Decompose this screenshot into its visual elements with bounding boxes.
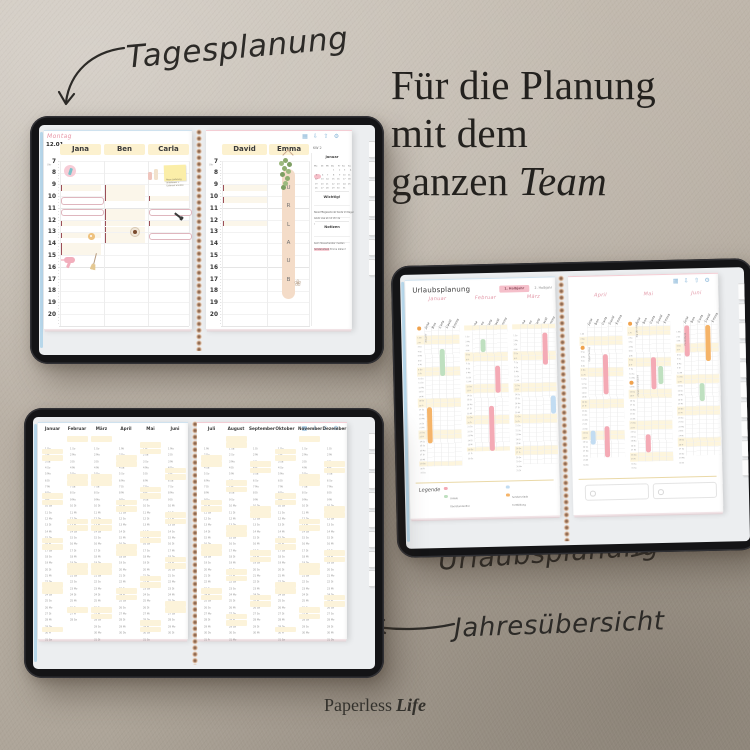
day-row: 7 Sa [299,474,320,480]
page-index-tab[interactable] [369,433,375,450]
overview-grid-icon[interactable]: ▦ [302,134,308,140]
export-icon[interactable]: ⇧ [323,134,329,140]
day-row: 11 Mi [67,500,88,506]
page-index-tab[interactable] [740,361,747,378]
day-row: 15 Di [250,525,271,531]
day-row: 14 Mi [42,519,63,525]
year-month: September1 Di2 Mi3 Do4 Fr5 Sa6 So7 Mo8 D… [249,423,272,639]
day-row: 14 Mo [250,519,271,525]
appointment-entry: Teamlunch → Anna [61,221,101,226]
day-row: 4 Mi [67,455,88,461]
page-index-tab[interactable] [369,492,375,509]
export-icon[interactable]: ⇧ [694,278,700,284]
appointment-entry: FÄRBEN (Anna) [61,197,104,204]
day-row: 5 Sa [324,461,345,467]
page-index-tab[interactable] [369,200,375,217]
sonderurlaub-bar [551,395,556,413]
day-row: 2 Fr [275,442,296,448]
holiday-note: Fortbildung [672,322,692,345]
headline-line2: mit dem [391,110,656,158]
date-text: 31 Sa [420,472,425,474]
vacation-left-page: Urlaubsplanung 1. Halbjahr 2. Halbjahr L… [405,276,560,518]
day-letter: Fr [338,165,340,167]
page-index-tab[interactable] [369,472,375,489]
day-row: 14 Di [116,519,137,525]
legend-label: Legende [419,487,441,493]
day-row: 2 Sa [140,442,161,448]
day-row: 16 So [226,531,247,537]
day-row: 23 Do [116,576,137,582]
day-row: 7 Do [140,474,161,480]
appointment-entry: STRÄHNEN (Umay) [149,233,192,240]
headline-line3-regular: ganzen [391,158,519,204]
page-index-tab[interactable] [739,303,746,320]
day-row: 6 Sa [165,468,186,474]
day-row: 23 Mi [250,576,271,582]
day-row: 26 So [201,595,222,601]
day-text: 30 Di [168,631,174,634]
day-number: 26 [315,187,318,189]
spiral-binding [192,129,206,351]
day-row: 29 Mo [165,614,186,620]
page-index-tab[interactable] [738,283,745,300]
legend-item-label: Überstundenfrei [449,493,482,513]
appointment-entry: FARBE (Lea S.) [61,209,104,216]
day-row: 15 Do [275,525,296,531]
appointment-entry: Beratung (Jan M.) [223,185,267,190]
day-row: 4 So [42,455,63,461]
comb-sticker [64,165,76,177]
day-row: 21 Di [116,563,137,569]
day-row: 10 Mo [226,493,247,499]
day-row: 24 Sa [42,582,63,588]
page-index-tab[interactable] [741,420,748,437]
day-row: 15 So [299,525,320,531]
day-row: 1 Di [250,436,271,442]
day-row: 6 Fr [91,468,112,474]
page-index-tab[interactable] [369,570,375,587]
day-row: 13 Do [226,512,247,518]
page-index-tab[interactable] [369,161,375,178]
ueberstunden-bar [481,339,486,353]
holiday-note: Neujahr [413,326,432,342]
note-text: Sonderurlaub Emma klären? [314,248,346,251]
page-index-tab[interactable] [369,531,375,548]
year-month: Januar1 Do2 Fr3 Sa4 So5 Mo6 Di7 Mi8 Do9 … [41,423,64,639]
day-row: 12 Mo [275,506,296,512]
day-row: 25 Sa [201,588,222,594]
day-row: 28 Sa [91,607,112,613]
day-row: 25 So [275,588,296,594]
day-row: 24 Sa [275,582,296,588]
day-row: 16 Do [201,531,222,537]
ueberstunden-bar [658,366,663,384]
date-cell: 30 Di [679,450,687,455]
page-index-tab[interactable] [369,511,375,528]
day-row: 21 Sa [299,563,320,569]
ueberstunden-bar [700,383,705,401]
day-letter: So [348,165,351,167]
day-row: 27 Fr [67,601,88,607]
day-row: 5 Sa [250,461,271,467]
appointment-entry: Ansatz + Längen abstimmen [223,226,269,231]
day-row: 5 Di [140,461,161,467]
day-row: 4 Mi [299,455,320,461]
day-row: 5 So [201,461,222,467]
day-row: 8 Mi [201,480,222,486]
day-row: 14 Fr [226,519,247,525]
day-row: 21 Mi [275,563,296,569]
day-row: 22 Mi [201,569,222,575]
day-row: 6 Mo [116,468,137,474]
date-text: 27 Fr [468,453,473,455]
day-row: 24 Do [324,582,345,588]
day-row: 11 So [42,500,63,506]
day-row: 17 Do [324,538,345,544]
vacation-planner-screen: Urlaubsplanung 1. Halbjahr 2. Halbjahr L… [400,267,750,549]
day-row: 10 Sa [275,493,296,499]
day-row: 23 Do [201,576,222,582]
page-index-tab[interactable] [369,259,375,276]
day-row: 16 Di [165,531,186,537]
day-row: 31 So [140,627,161,633]
day-row: 17 Do [250,538,271,544]
day-row: 15 So [67,525,88,531]
day-row: 10 Di [299,493,320,499]
day-row: 7 Sa [67,474,88,480]
vacation-month: MaiJanaBenCarlaDavidEmma1 Fr2 Sa3 So4 Mo… [626,291,674,472]
page-index-tab[interactable] [740,381,747,398]
year-month: Februar1 So2 Mo3 Di4 Mi5 Do6 Fr7 Sa8 So9… [66,423,89,639]
day-row: 8 So [299,480,320,486]
day-number: 5 [316,174,317,176]
day-row: 4 So [275,455,296,461]
page-index-tab[interactable] [369,239,375,256]
day-row: 29 Di [324,614,345,620]
day-row: 31 Sa [275,627,296,633]
day-row: 30 Sa [140,620,161,626]
day-row: 7 So [165,474,186,480]
day-row: 1 Mi [116,436,137,442]
day-row: 19 Do [67,550,88,556]
fortbildung-bar [427,407,432,443]
page-index-tab[interactable] [739,322,746,339]
day-row: 16 Mo [67,531,88,537]
headline-line3-italic: Team [519,158,607,204]
page-index-tab[interactable] [369,551,375,568]
day-row: 15 Sa [226,525,247,531]
day-row: 12 Sa [324,506,345,512]
year-month-name: November [298,426,321,431]
day-number: 3 [344,169,345,171]
day-row: 16 Sa [140,531,161,537]
urlaub-bar [646,434,651,452]
day-text: 30 Mo [302,631,309,634]
day-row: 13 Mi [140,512,161,518]
plant-sticker [272,155,298,191]
day-row: 30 Do [116,620,137,626]
download-icon[interactable]: ⇩ [683,278,689,284]
page-index-tab[interactable] [740,342,747,359]
day-row: 24 Di [67,582,88,588]
day-row: 31 Di [91,627,112,633]
appointment-entry: Herrenhaarschnitt (Nico T.) [105,196,145,201]
tab-first-half-year[interactable]: 1. Halbjahr [499,285,529,292]
day-number: 31 [343,187,346,189]
daily-sidebar: Januar MoDiMiDoFrSaSo1234567891011121314… [311,153,351,326]
vacation-month-grid: 1 Fr2 Sa3 So4 Mo5 Di6 Mi7 Do8 Fr9 Sa10 S… [627,321,673,461]
day-row: 13 So [324,512,345,518]
day-row: 1 So [299,436,320,442]
ueberstunden-bar [440,348,445,375]
day-row: 19 Do [91,550,112,556]
day-row: 17 Di [91,538,112,544]
year-month: April1 Mi2 Do3 Fr4 Sa5 So6 Mo7 Di8 Mi9 D… [115,423,138,639]
day-row: 12 Mi [226,506,247,512]
vacation-month-grid: 1 Mo2 Di3 Mi4 Do5 Fr6 Sa7 So8 Mo9 Di10 M… [675,320,721,456]
day-row: 4 Fr [250,455,271,461]
day-row: 17 Sa [275,538,296,544]
daily-right-page: DavidEmma Uhr 7891011121314151617181920 … [206,130,352,329]
vacation-month-name: April [578,292,622,299]
day-row: 22 Di [324,569,345,575]
day-row: 30 Mo [299,620,320,626]
day-number: 2 [339,169,340,171]
holiday-note-text: Tag der Arbeit [635,322,638,338]
day-number: 8 [333,174,334,176]
day-row: 12 So [201,506,222,512]
day-row: 26 Do [67,595,88,601]
day-row: 7 Di [116,474,137,480]
day-row: 19 Sa [324,550,345,556]
day-number: 25 [348,183,351,185]
day-row: 7 Mo [250,474,271,480]
headline: Für die Planung mit dem ganzen Team [391,62,656,206]
settings-icon[interactable]: ⚙ [334,134,340,140]
date-text: 30 Do [583,464,588,466]
day-row: 13 Di [42,512,63,518]
day-row: 9 Mo [299,487,320,493]
day-row: 8 Di [250,480,271,486]
planner-cover-edge [34,424,37,662]
day-text: 31 Mo [229,638,236,641]
day-row: 31 Fr [201,627,222,633]
note-text: beim Steuerberater melden [314,242,345,245]
vacation-month-grid: 1 Do2 Fr3 Sa4 So5 Mo6 Di7 Mi8 Do9 Fr10 S… [416,326,462,466]
day-row: 11 Mi [91,500,112,506]
day-row: 21 Sa [67,563,88,569]
daily-left-page: Montag 12.01 Uhr JanaBenCarla 7891011121… [44,130,192,329]
donut-sticker [88,233,95,240]
page-index-tab[interactable] [742,440,749,457]
day-row: 9 Mo [67,487,88,493]
fortbildung-bar [705,324,710,360]
day-row: 31 Do [324,627,345,633]
day-number: 11 [348,174,351,176]
day-row: 18 Fr [324,544,345,550]
vacation-month: AprilJanaBenCarlaDavidEmma1 Mi2 Do3 Fr4 … [578,292,626,473]
day-row: 2 Di [165,442,186,448]
day-row: 20 Do [226,557,247,563]
vacation-month-name: März [511,293,555,300]
day-row: 18 Mi [91,544,112,550]
fortbildung-legend-dot [506,493,510,497]
day-row: 21 Fr [226,563,247,569]
day-row: 17 Mo [226,538,247,544]
day-row: 30 Fr [275,620,296,626]
day-row: 6 Do [226,468,247,474]
day-row: 5 Fr [165,461,186,467]
day-row: 19 So [201,550,222,556]
year-month-name: Februar [66,426,89,431]
day-row: 11 Mi [299,500,320,506]
appointment-entry: Ansatz färben (Mia K.) [61,243,101,248]
date-text: 30 Sa [631,463,636,465]
day-row: 19 Mi [226,550,247,556]
holiday-note-text: Fortbildung [683,333,686,346]
appointment-entry: Mittagspause [105,221,145,226]
year-month: März1 So2 Mo3 Di4 Mi5 Do6 Fr7 Sa8 So9 Mo… [90,423,113,639]
day-row: 3 Sa [275,449,296,455]
day-number: 24 [343,183,346,185]
holiday-note-text: Neujahr [424,334,427,343]
date-cell: 28 Sa [468,446,476,451]
day-row: 10 Di [91,493,112,499]
note-text: ! [314,223,315,226]
day-row: 18 So [275,544,296,550]
page-index-tab[interactable] [369,180,375,197]
vacation-month-name: Januar [415,296,459,303]
day-letter: Mi [326,165,329,167]
day-row: 9 Fr [275,487,296,493]
day-row: 30 Do [201,620,222,626]
appointment-entry: Damenhaarschnitt (Maria) [61,185,101,190]
coffee-sticker [130,227,140,237]
day-number: 10 [343,174,346,176]
page-index-tab[interactable] [741,401,748,418]
day-row: 5 Mo [42,461,63,467]
date-cell: 31 So [631,456,639,461]
date-cell: 31 Sa [420,461,428,466]
page-index-tab[interactable] [369,219,375,236]
year-month: August1 Sa2 So3 Mo4 Di5 Mi6 Do7 Fr8 Sa9 … [225,423,248,639]
day-row: 6 Fr [67,468,88,474]
day-row: 20 So [324,557,345,563]
day-row: 14 Mo [324,519,345,525]
caption-jahresuebersicht: Jahresübersicht [454,606,666,643]
mini-calendar[interactable]: MoDiMiDoFrSaSo12345678910111213141516171… [314,161,350,188]
daily-planner-screen: Montag 12.01 Uhr JanaBenCarla 7891011121… [39,125,375,355]
day-number: 18 [348,178,351,180]
tab-second-half-year[interactable]: 2. Halbjahr [533,284,553,291]
day-row: 10 Fr [116,493,137,499]
day-row: 24 Di [299,582,320,588]
day-number: 7 [327,174,328,176]
page-index-tab[interactable] [742,459,749,476]
day-row: 1 So [67,436,88,442]
day-row: 15 Mi [116,525,137,531]
day-row: 18 Sa [116,544,137,550]
day-text: 31 Fr [204,638,210,641]
day-number: 29 [332,187,335,189]
day-text: 31 Do [327,638,334,641]
day-row: 27 Fr [91,601,112,607]
day-row: 9 Do [201,487,222,493]
day-number: 21 [326,183,329,185]
day-row: 19 Mo [275,550,296,556]
day-row: 13 Di [275,512,296,518]
day-row: 8 Do [275,480,296,486]
page-index-tab[interactable] [369,141,375,158]
planner-cover-edge [40,132,43,348]
ueberstunden-legend-dot [444,494,448,498]
day-row: 27 Di [275,601,296,607]
year-month: Juli1 Mi2 Do3 Fr4 Sa5 So6 Mo7 Di8 Mi9 Do… [200,423,223,639]
appointment-entry: Herrenhaarschnitt (Sven K.) [105,214,145,219]
day-row: 20 Di [42,557,63,563]
day-row: 30 Mi [324,620,345,626]
year-month-name: April [115,426,138,431]
day-row: 19 Sa [250,550,271,556]
legend-text: Fortbildung [512,503,526,506]
note-text: Neue Pflegeserie ab heute im Regal [314,211,353,214]
day-row: 30 Mo [91,620,112,626]
day-row: 23 Mi [324,576,345,582]
day-row: 14 Mi [275,519,296,525]
day-row: 19 Di [140,550,161,556]
settings-icon[interactable]: ⚙ [704,278,710,284]
sticky-note-line: Lieferant anrufen [166,173,185,177]
day-row: 18 Fr [250,544,271,550]
day-row: 16 Fr [42,531,63,537]
day-row: 13 Fr [299,512,320,518]
day-row: 16 Fr [275,531,296,537]
day-row: 27 Mi [140,601,161,607]
day-row: 27 So [324,601,345,607]
day-row: 26 Sa [250,595,271,601]
download-icon[interactable]: ⇩ [313,134,319,140]
day-row: 7 Sa [91,474,112,480]
day-row: 6 Mo [201,468,222,474]
day-row: 1 Fr [140,436,161,442]
day-row: 28 Mo [250,607,271,613]
date-text: 31 Di [516,470,521,472]
day-row: 20 Mo [201,557,222,563]
year-month-name: Mai [139,426,162,431]
flower-sticker [294,279,302,289]
day-row: 2 Mo [91,442,112,448]
day-row: 22 Fr [140,569,161,575]
year-month-name: Januar [41,426,64,431]
note-post: Emma klären? [329,248,345,251]
day-row: 5 Mi [226,461,247,467]
note-line: beim Steuerberater melden [314,231,350,237]
page-index-tab[interactable] [369,453,375,470]
headline-line1: Für die Planung [391,62,656,110]
tablet-vacation-planner: Urlaubsplanung 1. Halbjahr 2. Halbjahr L… [391,258,750,558]
day-row: 30 So [226,620,247,626]
appointment-entry: Waschen + Föhnen (Irene B.) [149,196,189,201]
day-row: 1 Do [42,436,63,442]
day-row: 26 Mo [42,595,63,601]
day-row: 16 Mo [91,531,112,537]
year-month-name: Oktober [274,426,297,431]
day-row: 7 Mi [42,474,63,480]
day-row: 5 Do [299,461,320,467]
page-tab-rail [738,283,748,476]
page-tab-rail [369,433,375,587]
overview-grid-icon[interactable]: ▦ [673,279,679,285]
